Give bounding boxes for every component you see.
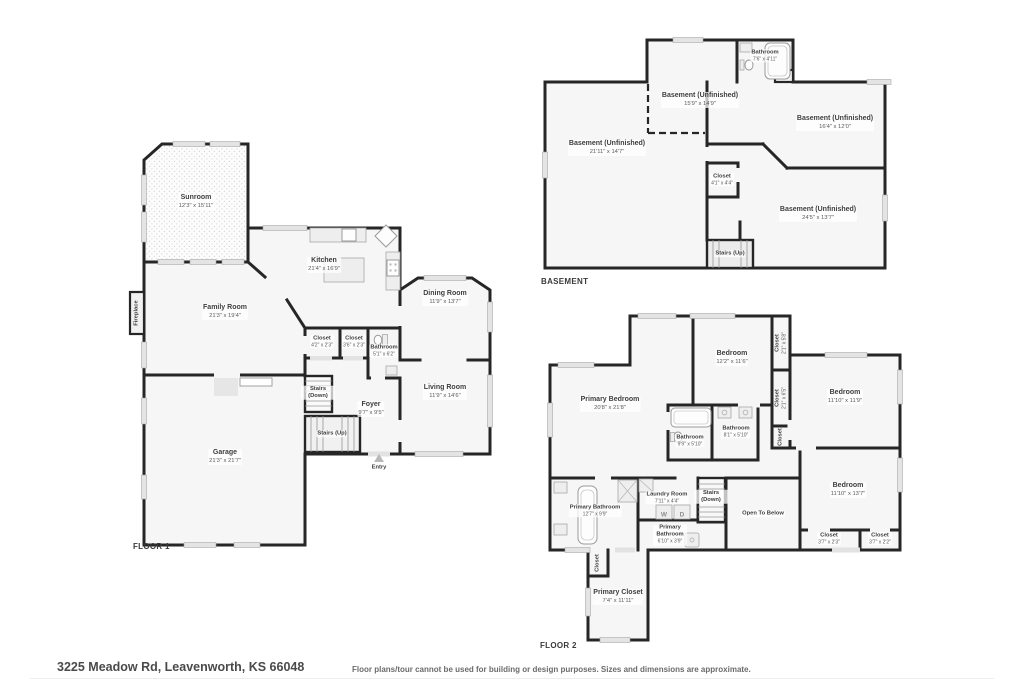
room-label-closet-b: Closet 2'1" x 6'5" bbox=[774, 386, 787, 410]
room-dims: 2'1" x 6'5" bbox=[781, 387, 787, 409]
room-label-bathroom: Bathroom 5'1" x 6'2" bbox=[369, 344, 398, 357]
floorplan-page: Sunroom 12'3" x 15'11" Kitchen 21'4" x 1… bbox=[0, 0, 1024, 682]
room-label-bathroom1: Bathroom 9'9" x 5'10" bbox=[675, 434, 704, 447]
room-label-primary-bathroom2: Primary Bathroom 6'10" x 3'9" bbox=[653, 525, 687, 546]
room-name: Primary Bedroom bbox=[581, 396, 640, 405]
room-label-bedroom-bottom: Bedroom 11'10" x 13'7" bbox=[830, 482, 867, 498]
room-dims: 15'9" x 14'9" bbox=[662, 101, 738, 108]
room-label-kitchen: Kitchen 21'4" x 16'9" bbox=[307, 257, 341, 273]
property-address: 3225 Meadow Rd, Leavenworth, KS 66048 bbox=[57, 660, 304, 674]
footer-divider bbox=[30, 678, 994, 679]
room-name: Closet bbox=[777, 428, 784, 446]
room-dims: 21'4" x 16'9" bbox=[308, 266, 340, 273]
room-name: Bathroom bbox=[722, 425, 749, 432]
room-label-closet1: Closet 4'2" x 2'3" bbox=[310, 335, 334, 348]
room-label-bedroom-top: Bedroom 12'2" x 11'6" bbox=[715, 350, 748, 366]
room-label-dining: Dining Room 11'9" x 13'7" bbox=[422, 290, 468, 306]
room-name: Bedroom bbox=[716, 350, 747, 359]
room-name: Closet bbox=[311, 335, 333, 342]
floor-1-title: FLOOR 1 bbox=[133, 542, 170, 551]
room-name: Primary Bathroom bbox=[654, 525, 686, 539]
room-label-primary-bedroom: Primary Bedroom 20'8" x 21'8" bbox=[580, 396, 641, 412]
room-label-living: Living Room 11'9" x 14'6" bbox=[423, 384, 467, 400]
room-dims: 5'1" x 6'2" bbox=[370, 351, 397, 357]
room-dims: 21'11" x 14'7" bbox=[569, 149, 645, 156]
room-label-sunroom: Sunroom 12'3" x 15'11" bbox=[178, 194, 215, 210]
room-dims: 21'3" x 19'4" bbox=[203, 313, 247, 320]
room-label-basement-stairs: Stairs (Up) bbox=[714, 250, 745, 257]
floor-2-plan: W D Primary Bedroom 20'8" x 21'8" Bedroo… bbox=[540, 308, 910, 653]
floor-2-title: FLOOR 2 bbox=[540, 641, 577, 650]
room-dims: 9'7" x 9'5" bbox=[358, 410, 383, 417]
room-name: Closet bbox=[869, 532, 891, 539]
room-label-closet-e: Closet 3'7" x 2'2" bbox=[868, 532, 892, 545]
room-label-basement-unf2: Basement (Unfinished) 16'4" x 12'0" bbox=[796, 115, 874, 131]
room-name: Closet bbox=[711, 173, 733, 180]
room-label-basement-unf1: Basement (Unfinished) 15'9" x 14'9" bbox=[661, 92, 739, 108]
room-label-laundry: Laundry Room 7'11" x 4'4" bbox=[646, 491, 689, 504]
room-label-open-to-below: Open To Below bbox=[741, 510, 785, 517]
washer-letter: W bbox=[661, 512, 668, 519]
room-dims: 4'1" x 4'4" bbox=[711, 180, 733, 186]
room-name: Basement (Unfinished) bbox=[569, 140, 645, 149]
room-name: Family Room bbox=[203, 304, 247, 313]
room-name: Fireplace bbox=[133, 300, 140, 325]
room-label-garage: Garage 21'3" x 21'7" bbox=[208, 449, 242, 465]
room-dims: 7'4" x 11'11" bbox=[593, 598, 642, 605]
room-dims: 12'7" x 9'9" bbox=[570, 511, 621, 517]
room-name: Closet bbox=[774, 387, 781, 409]
room-name: Primary Bathroom bbox=[570, 504, 621, 511]
room-name: Living Room bbox=[424, 384, 466, 393]
room-label-basement-bathroom: Bathroom 7'6" x 4'11" bbox=[750, 49, 779, 62]
room-label-family: Family Room 21'3" x 19'4" bbox=[202, 304, 248, 320]
room-name: Basement (Unfinished) bbox=[780, 206, 856, 215]
room-label-basement-closet: Closet 4'1" x 4'4" bbox=[710, 173, 734, 186]
room-name: Basement (Unfinished) bbox=[662, 92, 738, 101]
room-label-bathroom2: Bathroom 8'1" x 5'10" bbox=[721, 425, 750, 438]
room-name: Bathroom bbox=[370, 344, 397, 351]
room-name: Stairs (Down) bbox=[695, 490, 727, 504]
room-label-bedroom-right: Bedroom 11'10" x 11'9" bbox=[827, 389, 863, 405]
room-dims: 7'11" x 4'4" bbox=[647, 498, 688, 504]
room-name: Closet bbox=[818, 532, 840, 539]
room-dims: 3'7" x 2'3" bbox=[818, 539, 840, 545]
room-dims: 11'10" x 11'9" bbox=[828, 398, 862, 405]
room-name: Dining Room bbox=[423, 290, 467, 299]
room-name: Stairs (Down) bbox=[302, 386, 334, 400]
room-name: Bathroom bbox=[751, 49, 778, 56]
room-name: Closet bbox=[774, 332, 781, 354]
room-dims: 24'5" x 13'7" bbox=[780, 215, 856, 222]
room-label-primary-bathroom: Primary Bathroom 12'7" x 9'9" bbox=[569, 504, 622, 517]
room-dims: 2'1" x 5'8" bbox=[781, 332, 787, 354]
dryer-letter: D bbox=[680, 512, 685, 519]
room-label-closet-f: Closet bbox=[594, 553, 601, 573]
room-name: Sunroom bbox=[179, 194, 214, 203]
room-dims: 16'4" x 12'0" bbox=[797, 124, 873, 131]
room-dims: 3'6" x 2'3" bbox=[343, 342, 365, 348]
room-dims: 21'3" x 21'7" bbox=[209, 458, 241, 465]
room-dims: 12'3" x 15'11" bbox=[179, 203, 214, 210]
room-name: Stairs (Up) bbox=[715, 250, 744, 257]
room-label-stairs-up: Stairs (Up) bbox=[316, 430, 347, 437]
room-name: Garage bbox=[209, 449, 241, 458]
room-label-closet-c: Closet bbox=[777, 427, 784, 447]
room-label-closet-d: Closet 3'7" x 2'3" bbox=[817, 532, 841, 545]
basement-plan: Bathroom 7'6" x 4'11" Basement (Unfinish… bbox=[540, 32, 900, 292]
room-label-basement-unf3: Basement (Unfinished) 21'11" x 14'7" bbox=[568, 140, 646, 156]
room-label-stairs-down-f2: Stairs (Down) bbox=[694, 490, 728, 504]
room-dims: 8'1" x 5'10" bbox=[722, 432, 749, 438]
room-name: Kitchen bbox=[308, 257, 340, 266]
room-name: Basement (Unfinished) bbox=[797, 115, 873, 124]
room-name: Closet bbox=[343, 335, 365, 342]
room-label-fireplace: Fireplace bbox=[133, 299, 140, 326]
room-name: Bedroom bbox=[831, 482, 866, 491]
room-name: Bathroom bbox=[676, 434, 703, 441]
room-label-closet2: Closet 3'6" x 2'3" bbox=[342, 335, 366, 348]
room-dims: 9'9" x 5'10" bbox=[676, 441, 703, 447]
room-dims: 7'6" x 4'11" bbox=[751, 56, 778, 62]
room-dims: 11'9" x 14'6" bbox=[424, 393, 466, 400]
room-name: Foyer bbox=[358, 401, 383, 410]
room-name: Bedroom bbox=[828, 389, 862, 398]
room-name: Open To Below bbox=[742, 510, 784, 517]
room-name: Closet bbox=[594, 554, 601, 572]
room-dims: 20'8" x 21'8" bbox=[581, 405, 640, 412]
room-dims: 11'9" x 13'7" bbox=[423, 299, 467, 306]
room-dims: 3'7" x 2'2" bbox=[869, 539, 891, 545]
room-dims: 11'10" x 13'7" bbox=[831, 491, 866, 498]
room-label-stairs-down: Stairs (Down) bbox=[301, 386, 335, 400]
room-label-foyer: Foyer 9'7" x 9'5" bbox=[357, 401, 384, 417]
room-name: Primary Closet bbox=[593, 589, 642, 598]
room-label-entry: Entry bbox=[371, 464, 388, 471]
room-label-closet-a: Closet 2'1" x 5'8" bbox=[774, 331, 787, 355]
disclaimer-text: Floor plans/tour cannot be used for buil… bbox=[352, 665, 751, 674]
basement-title: BASEMENT bbox=[541, 277, 588, 286]
room-dims: 4'2" x 2'3" bbox=[311, 342, 333, 348]
room-label-basement-unf4: Basement (Unfinished) 24'5" x 13'7" bbox=[779, 206, 857, 222]
room-label-primary-closet: Primary Closet 7'4" x 11'11" bbox=[592, 589, 643, 605]
room-name: Laundry Room bbox=[647, 491, 688, 498]
room-name: Entry bbox=[372, 464, 387, 471]
floor-1-plan: Sunroom 12'3" x 15'11" Kitchen 21'4" x 1… bbox=[128, 140, 508, 560]
room-name: Stairs (Up) bbox=[317, 430, 346, 437]
room-dims: 6'10" x 3'9" bbox=[654, 539, 686, 545]
room-dims: 12'2" x 11'6" bbox=[716, 359, 747, 366]
